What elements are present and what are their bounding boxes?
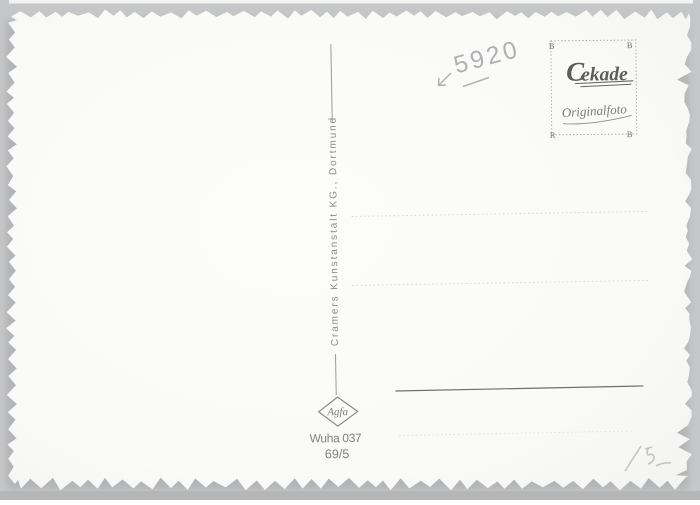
svg-text:R: R — [550, 130, 556, 140]
svg-text:B: B — [627, 129, 633, 139]
svg-text:B: B — [549, 41, 555, 51]
svg-text:B: B — [627, 40, 633, 50]
svg-text:Wuha 037: Wuha 037 — [310, 431, 363, 446]
svg-text:Agfa: Agfa — [326, 406, 348, 418]
svg-text:69/5: 69/5 — [325, 447, 350, 461]
